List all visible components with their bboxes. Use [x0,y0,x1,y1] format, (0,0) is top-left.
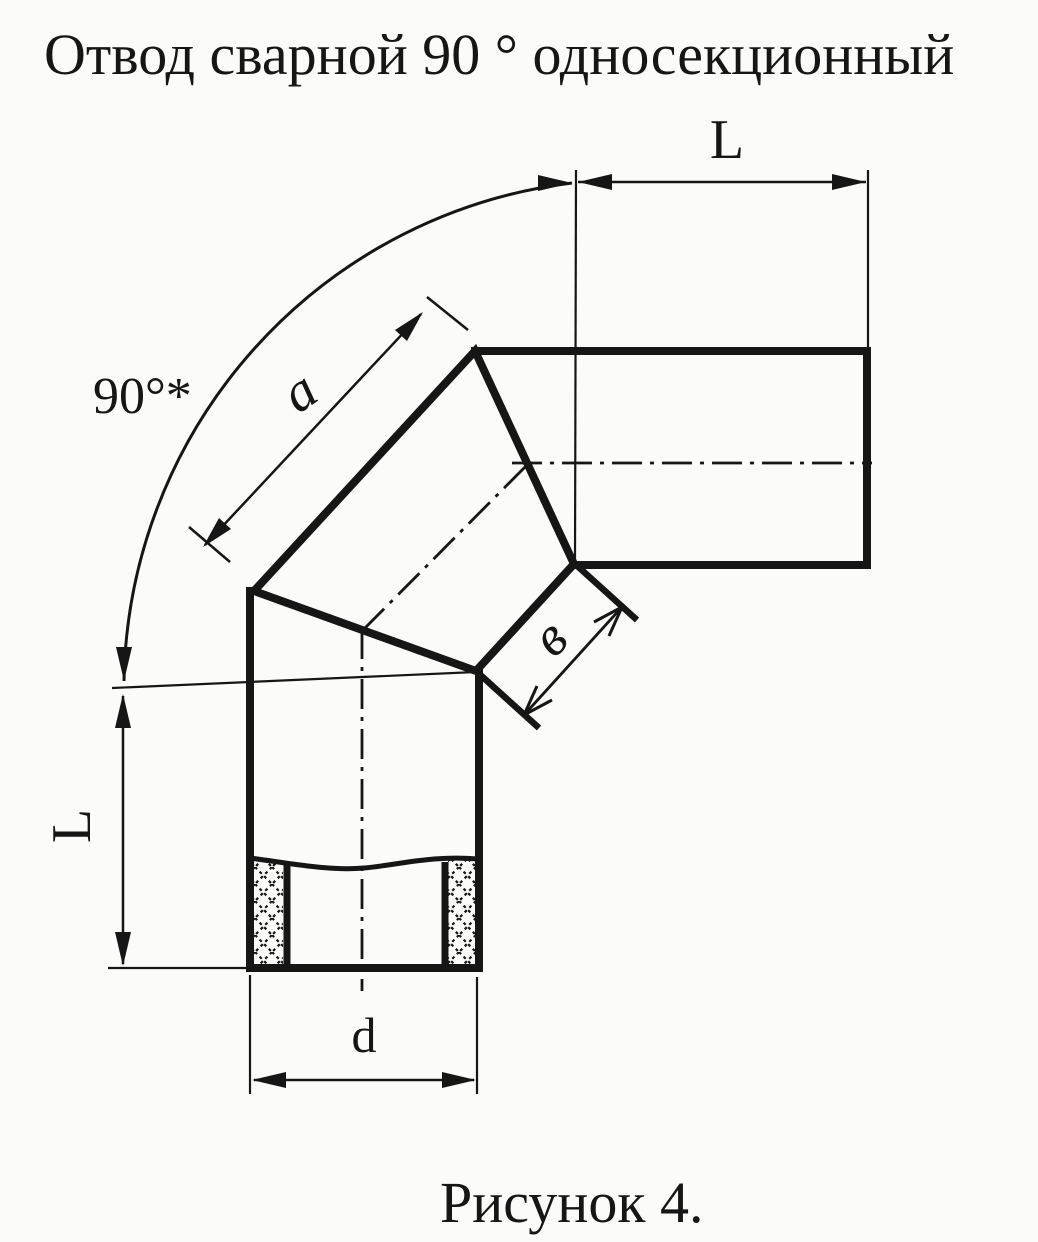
segment-length-a-label: a [270,358,328,425]
diameter-d-label: d [352,1007,377,1063]
arrowhead-top [115,694,131,728]
angle-arc [124,183,572,681]
figure-caption: Рисунок 4. [440,1170,704,1235]
extension-line-top [112,672,476,688]
arrowhead-left [578,174,612,190]
elbow-technical-drawing: Отвод сварной 90 ° односекционный 90°* [0,0,1038,1242]
dimension-d: d [250,975,477,1094]
dimension-line [205,314,421,545]
dimension-L-top: L [575,109,868,562]
length-L-left-label: L [41,809,103,843]
extension-stub-upper [427,297,468,330]
right-wall-hatch [448,859,477,964]
angle-value-label: 90°* [93,368,192,425]
arrowhead-right [832,174,866,190]
centerlines [362,463,872,991]
extension-stub-upper [574,563,637,620]
arrowhead-left [252,1072,286,1088]
wall-section-hatching [253,859,477,965]
dimension-a: a [189,297,468,562]
diagonal-centerline [363,464,528,630]
drawing-title: Отвод сварной 90 ° односекционный [44,22,954,87]
scanned-sheet: Отвод сварной 90 ° односекционный 90°* [0,0,1038,1242]
extension-line-left [575,170,576,562]
left-wall-hatch [253,860,283,964]
arc-arrowhead-top [538,175,572,191]
angle-dimension-90: 90°* [93,175,572,681]
arrowhead-right [442,1072,476,1088]
seam-width-v-label: в [520,607,581,668]
horizontal-pipe-outline [475,351,867,565]
arrowhead-bottom [115,932,131,966]
arc-arrowhead-bottom [116,647,132,681]
length-L-top-label: L [710,109,744,171]
